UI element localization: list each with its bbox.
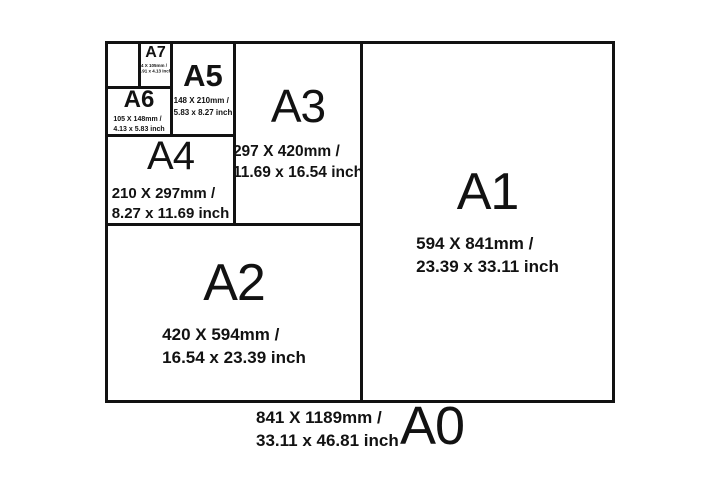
paper-dims-inch: 16.54 x 23.39 inch	[162, 347, 306, 370]
paper-dims-a4: 210 X 297mm / 8.27 x 11.69 inch	[112, 184, 230, 225]
paper-dims-mm: 841 X 1189mm /	[256, 407, 399, 430]
paper-dims-a7: 74 X 105mm / 2.91 x 4.13 inch	[139, 63, 172, 74]
paper-box-a2: A2 420 X 594mm / 16.54 x 23.39 inch	[105, 223, 363, 403]
paper-sizes-diagram: A7 74 X 105mm / 2.91 x 4.13 inch A6 105 …	[0, 0, 720, 480]
paper-dims-inch: 8.27 x 11.69 inch	[112, 204, 230, 224]
paper-dims-a5: 148 X 210mm / 5.83 x 8.27 inch	[174, 95, 233, 119]
paper-label-a3: A3	[271, 83, 325, 129]
paper-box-a1: A1 594 X 841mm / 23.39 x 33.11 inch	[360, 41, 615, 403]
paper-dims-mm: 210 X 297mm /	[112, 184, 230, 204]
paper-dims-a6: 105 X 148mm / 4.13 x 5.83 inch	[113, 115, 164, 135]
paper-box-a4: A4 210 X 297mm / 8.27 x 11.69 inch	[105, 134, 236, 226]
paper-dims-mm: 148 X 210mm /	[174, 95, 233, 107]
paper-dims-mm: 420 X 594mm /	[162, 324, 306, 347]
paper-box-a3: A3 297 X 420mm / 11.69 x 16.54 inch	[233, 41, 363, 226]
paper-label-a2: A2	[203, 257, 265, 309]
paper-box-empty	[105, 41, 141, 89]
paper-dims-mm: 105 X 148mm /	[113, 115, 164, 125]
paper-label-a1: A1	[457, 166, 519, 218]
paper-dims-a1: 594 X 841mm / 23.39 x 33.11 inch	[416, 233, 559, 279]
paper-dims-inch: 33.11 x 46.81 inch	[256, 430, 399, 453]
paper-dims-mm: 297 X 420mm /	[233, 142, 363, 163]
paper-dims-mm: 594 X 841mm /	[416, 233, 559, 256]
paper-label-a6: A6	[124, 88, 155, 112]
paper-label-a5: A5	[183, 60, 223, 91]
paper-dims-a3: 297 X 420mm / 11.69 x 16.54 inch	[233, 142, 363, 184]
paper-label-a0: A0	[400, 399, 464, 453]
paper-dims-a0: 841 X 1189mm / 33.11 x 46.81 inch	[256, 407, 399, 453]
paper-dims-inch: 2.91 x 4.13 inch	[139, 69, 172, 74]
paper-dims-a2: 420 X 594mm / 16.54 x 23.39 inch	[162, 324, 306, 370]
paper-dims-inch: 11.69 x 16.54 inch	[233, 163, 363, 184]
paper-dims-inch: 23.39 x 33.11 inch	[416, 256, 559, 279]
paper-label-a7: A7	[145, 45, 165, 61]
paper-box-a5: A5 148 X 210mm / 5.83 x 8.27 inch	[170, 41, 236, 137]
paper-box-a6: A6 105 X 148mm / 4.13 x 5.83 inch	[105, 86, 173, 137]
paper-label-a4: A4	[147, 136, 194, 176]
paper-dims-inch: 5.83 x 8.27 inch	[174, 107, 233, 119]
paper-box-a7: A7 74 X 105mm / 2.91 x 4.13 inch	[138, 41, 173, 89]
